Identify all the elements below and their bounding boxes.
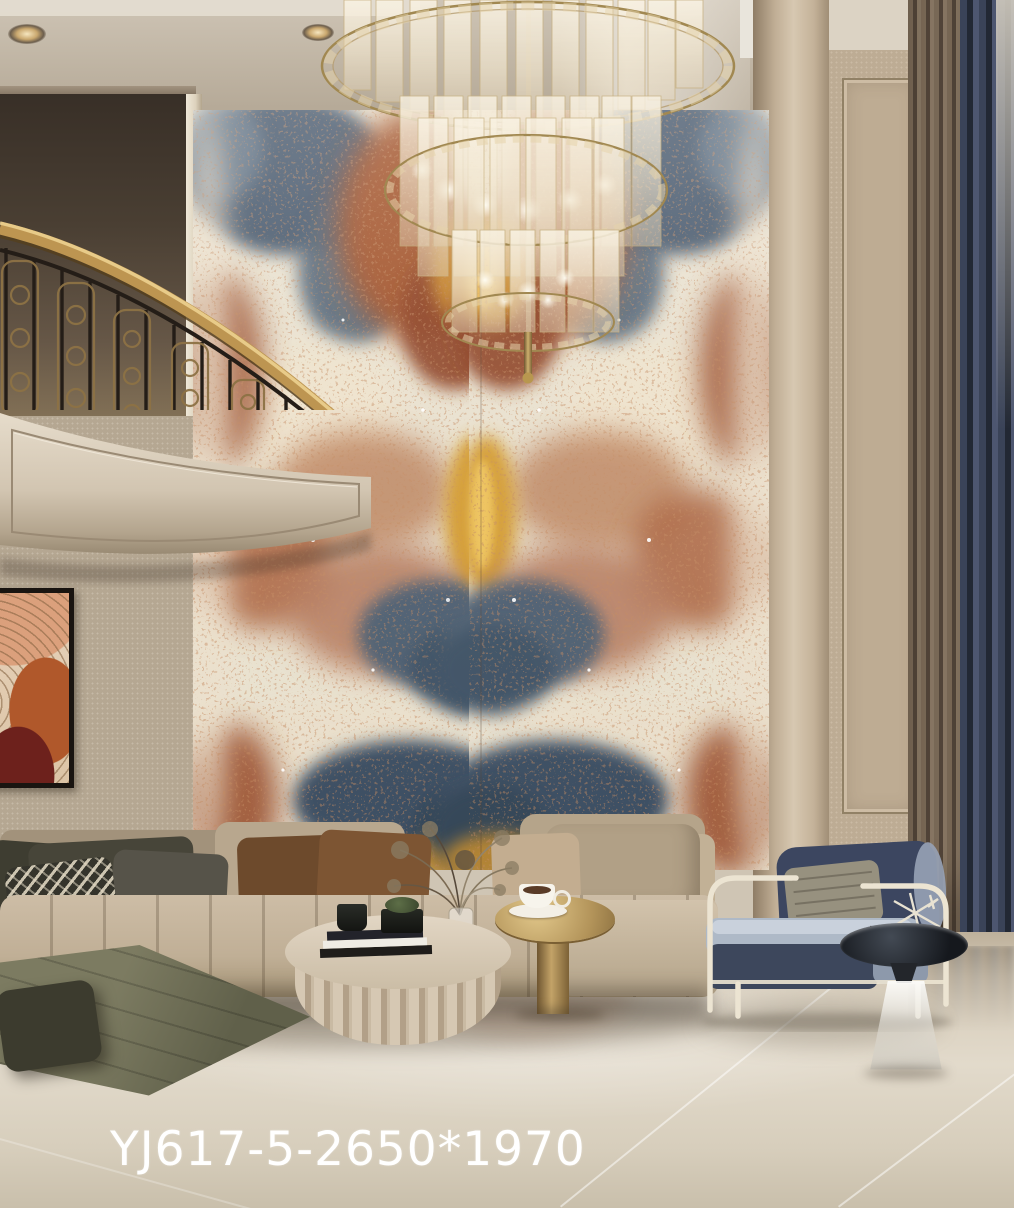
side-table-neck <box>886 963 922 983</box>
spotlight-icon <box>302 24 334 41</box>
product-code-label: YJ617-5-2650*1970 <box>110 1126 586 1173</box>
gold-side-table <box>495 882 619 1028</box>
fluted-coffee-table <box>285 915 515 1065</box>
succulent-plant <box>385 897 419 913</box>
glass-cone-base <box>868 981 944 1073</box>
black-vessel <box>337 904 367 931</box>
side-table-top <box>840 923 968 967</box>
curtain-sheer <box>996 0 1014 430</box>
coffee <box>523 886 551 894</box>
curtain-taupe <box>908 0 966 946</box>
glass-side-table <box>840 885 975 1085</box>
cup-handle <box>553 890 571 908</box>
marble-wall-side-edge <box>186 94 202 428</box>
round-column <box>753 0 831 942</box>
green-chaise-bolster <box>0 979 103 1074</box>
ceiling-highlight <box>560 0 750 110</box>
gold-table-shadow <box>515 1008 605 1021</box>
artwork-canvas <box>0 593 69 783</box>
gold-table-stem <box>537 934 569 1014</box>
abstract-artwork <box>0 588 74 788</box>
ceiling-cove <box>0 0 420 16</box>
living-room-photo: YJ617-5-2650*1970 <box>0 0 1014 1208</box>
side-table-shadow <box>864 1067 948 1079</box>
spotlight-icon <box>8 24 46 44</box>
marble-feature-wall <box>193 110 769 870</box>
upper-level-wall <box>0 94 194 424</box>
